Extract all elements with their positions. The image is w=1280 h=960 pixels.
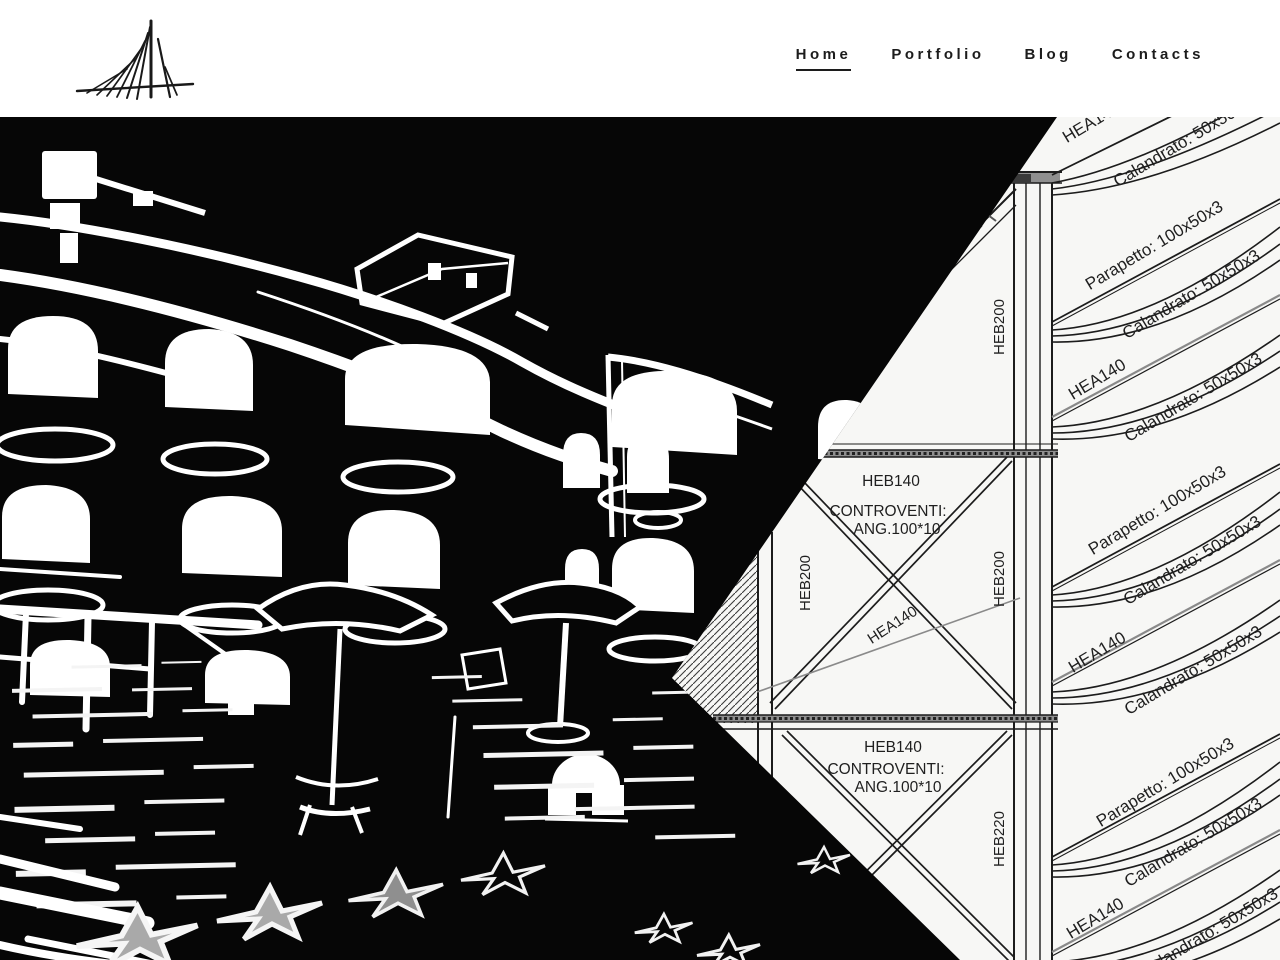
drawing-label: HEB200 <box>797 555 814 611</box>
nav-link-home[interactable]: Home <box>796 46 852 71</box>
drawing-label: HEB140 <box>862 473 920 490</box>
main-nav: HomePortfolioBlogContacts <box>796 46 1204 71</box>
nav-link-contacts[interactable]: Contacts <box>1112 46 1204 71</box>
drawing-label: CONTROVENTI: <box>827 761 944 778</box>
drawing-label: HEB220 <box>991 811 1008 867</box>
drawing-label: CONTROVENTI: <box>829 503 946 520</box>
drawing-label: HEB200 <box>991 551 1008 607</box>
bridge-pylon-logo-icon <box>75 17 195 101</box>
logo[interactable] <box>75 17 195 101</box>
drawing-label: ANG.100*10 <box>853 521 940 538</box>
nav-link-blog[interactable]: Blog <box>1024 46 1071 71</box>
drawing-label: ANG.100*10 <box>854 779 941 796</box>
hero-architectural-collage: HEB140CONTROVENTI:ANG.100*10HEB140CONTRO… <box>0 117 1280 960</box>
drawing-label: HEB140 <box>864 739 922 756</box>
nav-link-portfolio[interactable]: Portfolio <box>891 46 984 71</box>
drawing-label: HEB200 <box>991 299 1008 355</box>
site-header: HomePortfolioBlogContacts <box>0 0 1280 117</box>
hero-svg: HEB140CONTROVENTI:ANG.100*10HEB140CONTRO… <box>0 117 1280 960</box>
